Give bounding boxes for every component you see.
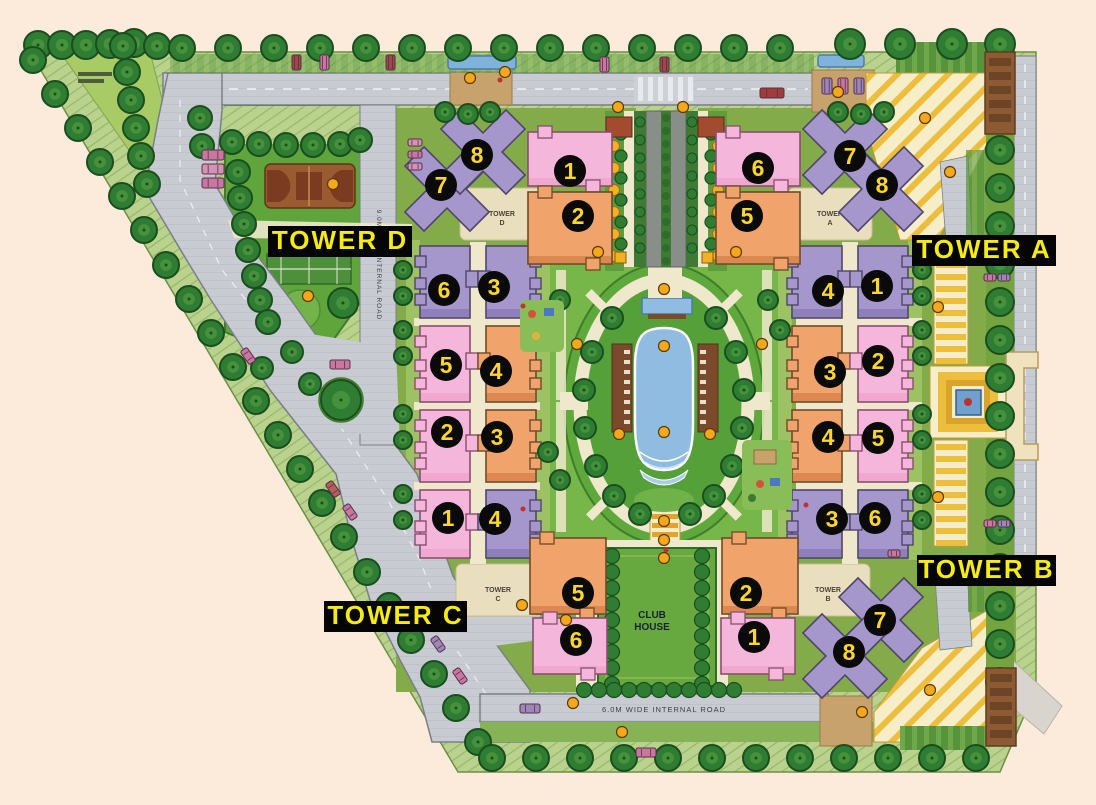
svg-text:5: 5: [440, 352, 453, 378]
svg-text:TOWER: TOWER: [489, 211, 515, 218]
svg-text:5: 5: [572, 580, 585, 606]
svg-text:6.0M WIDE INTERNAL ROAD: 6.0M WIDE INTERNAL ROAD: [602, 705, 726, 714]
svg-text:1: 1: [748, 624, 761, 650]
svg-text:4: 4: [489, 506, 502, 532]
svg-text:D: D: [499, 220, 504, 227]
svg-text:TOWER B: TOWER B: [918, 554, 1054, 584]
svg-text:CLUB: CLUB: [638, 610, 666, 621]
svg-text:B: B: [825, 596, 830, 603]
svg-text:5: 5: [872, 425, 885, 451]
svg-text:7: 7: [874, 607, 887, 633]
svg-text:4: 4: [490, 358, 503, 384]
svg-text:5: 5: [741, 203, 754, 229]
svg-text:3: 3: [491, 424, 504, 450]
svg-text:HOUSE: HOUSE: [634, 622, 670, 633]
svg-text:2: 2: [441, 419, 454, 445]
svg-text:6: 6: [869, 505, 882, 531]
svg-text:A: A: [827, 220, 832, 227]
svg-text:7: 7: [435, 172, 448, 198]
svg-text:TOWER C: TOWER C: [327, 600, 463, 630]
svg-text:1: 1: [871, 273, 884, 299]
svg-text:2: 2: [740, 580, 753, 606]
svg-text:TOWER: TOWER: [485, 587, 511, 594]
svg-text:8: 8: [843, 639, 856, 665]
svg-text:4: 4: [822, 278, 835, 304]
svg-text:C: C: [495, 596, 500, 603]
svg-text:7: 7: [844, 143, 857, 169]
svg-text:3: 3: [826, 506, 839, 532]
svg-text:2: 2: [872, 348, 885, 374]
svg-text:6: 6: [438, 277, 451, 303]
svg-text:2: 2: [572, 203, 585, 229]
svg-text:6: 6: [752, 155, 765, 181]
svg-text:8: 8: [876, 172, 889, 198]
svg-text:TOWER D: TOWER D: [272, 225, 408, 255]
svg-text:6: 6: [570, 627, 583, 653]
svg-text:3: 3: [488, 274, 501, 300]
svg-text:4: 4: [822, 424, 835, 450]
svg-text:1: 1: [442, 505, 455, 531]
svg-text:3: 3: [824, 359, 837, 385]
svg-text:8: 8: [471, 142, 484, 168]
svg-text:TOWER: TOWER: [815, 587, 841, 594]
svg-text:1: 1: [564, 158, 577, 184]
svg-text:TOWER A: TOWER A: [916, 234, 1051, 264]
